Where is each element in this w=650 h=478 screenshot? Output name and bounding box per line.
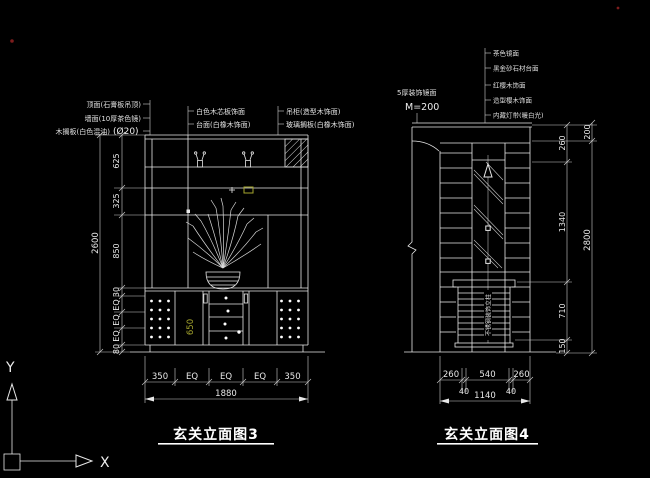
dim-260: 260 [558,135,567,150]
dim-625: 625 [112,153,121,168]
note-line1: 5厚装饰镜面 [397,88,436,97]
left-elevation: 650 625 32 [56,100,355,445]
callout-ceiling: 顶面(石膏板吊顶) [87,100,142,109]
dim-1340: 1340 [558,212,567,232]
dim-30: 30 [112,287,121,297]
callout-diameter-20: (Ø20) [113,126,139,137]
dim-710: 710 [558,303,567,318]
dim-eq: EQ [186,372,198,382]
glass-panel [474,162,503,268]
right-cabinet-outline [404,123,556,352]
right-callouts: 茶色镜面 黑金砂石材台面 红樱木饰面 造型樱木饰面 内藏灯带(暖白光) [485,48,544,123]
right-width-dims: 260 540 260 40 40 1140 [437,356,533,404]
cad-drawing-canvas: 650 625 32 [0,0,650,478]
left-height-dims: 625 325 850 30 EQ EQ EQ 80 2600 [91,132,152,355]
callout-tea-mirror: 茶色镜面 [493,49,520,58]
mirror-note: 5厚装饰镜面 M=200 [397,88,439,123]
dim-325: 325 [112,193,121,208]
dim-eq: EQ [112,330,121,341]
left-elevation-title: 玄关立面图3 [173,426,259,443]
ucs-axis-icon: Y X [4,360,110,471]
y-axis-label: Y [5,360,15,376]
pedestal-center-label: 不锈钢装饰立柱 [485,294,493,336]
counter-height-label: 650 [186,319,196,335]
drawer-knobs [224,297,241,340]
callout-countertop: 台面(白橡木饰面) [196,120,251,129]
title-underline [158,443,274,445]
dim-1880: 1880 [215,389,237,399]
left-width-dims: 350 EQ EQ EQ 350 1880 [142,356,311,403]
callout-panel: 白色木芯板饰面 [196,107,245,116]
right-height-dims: 260 1340 710 150 200 2800 [515,120,597,356]
callout-shaped-veneer: 造型樱木饰面 [493,96,533,105]
callout-glass-shelf: 玻璃搁板(白橡木饰面) [286,120,355,129]
dim-540: 540 [479,370,495,380]
dim-260: 260 [513,370,529,380]
potted-plant [186,198,263,268]
callout-cherry-veneer: 红樱木饰面 [493,81,526,90]
callout-shelf: 木搁板(白色混油) [56,127,111,136]
dim-260: 260 [443,370,459,380]
title-underline [437,443,538,445]
lattice-door-dots [150,300,300,339]
note-line2: M=200 [405,102,439,113]
dim-2600: 2600 [91,232,101,254]
dim-eq: EQ [112,314,121,325]
x-axis-label: X [100,455,110,471]
cad-drawing: 650 625 32 [0,0,650,478]
dim-80: 80 [112,344,121,354]
red-noise-markers [10,7,619,43]
plant-pot [206,272,240,289]
right-elevation-title: 玄关立面图4 [444,426,530,443]
callout-stone-top: 黑金砂石材台面 [493,64,539,73]
dim-2800: 2800 [583,229,593,251]
dim-eq: EQ [254,372,266,382]
dim-200: 200 [583,124,592,139]
left-callouts: 顶面(石膏板吊顶) 墙面(10厚茶色镜) 木搁板(白色混油) (Ø20) 白色木… [56,100,355,137]
dim-1140: 1140 [474,391,496,401]
dim-150: 150 [558,338,567,353]
dim-850: 850 [112,243,121,258]
callout-light-strip: 内藏灯带(暖白光) [493,111,544,120]
dim-350: 350 [284,372,300,382]
dim-eq: EQ [220,372,232,382]
right-elevation: 不锈钢装饰立柱 5厚装饰镜面 M=200 茶色镜面 黑金砂石材台面 红樱木饰面 … [397,48,597,445]
hatched-beam [285,139,308,167]
dim-eq: EQ [112,299,121,310]
callout-upper-cabinet: 吊柜(造型木饰面) [286,107,341,116]
callout-wall: 墙面(10厚茶色镜) [85,114,142,123]
dim-350: 350 [152,372,168,382]
dim-40: 40 [506,387,516,396]
coat-hook-icon [243,152,254,167]
dim-40: 40 [459,387,469,396]
coat-hook-icon [195,152,206,167]
